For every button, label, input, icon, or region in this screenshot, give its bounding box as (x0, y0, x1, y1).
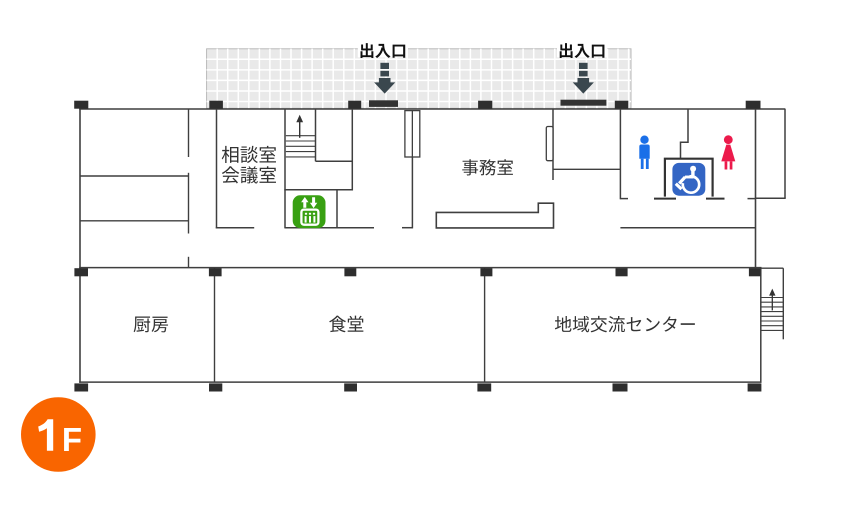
svg-text:F: F (62, 421, 82, 458)
